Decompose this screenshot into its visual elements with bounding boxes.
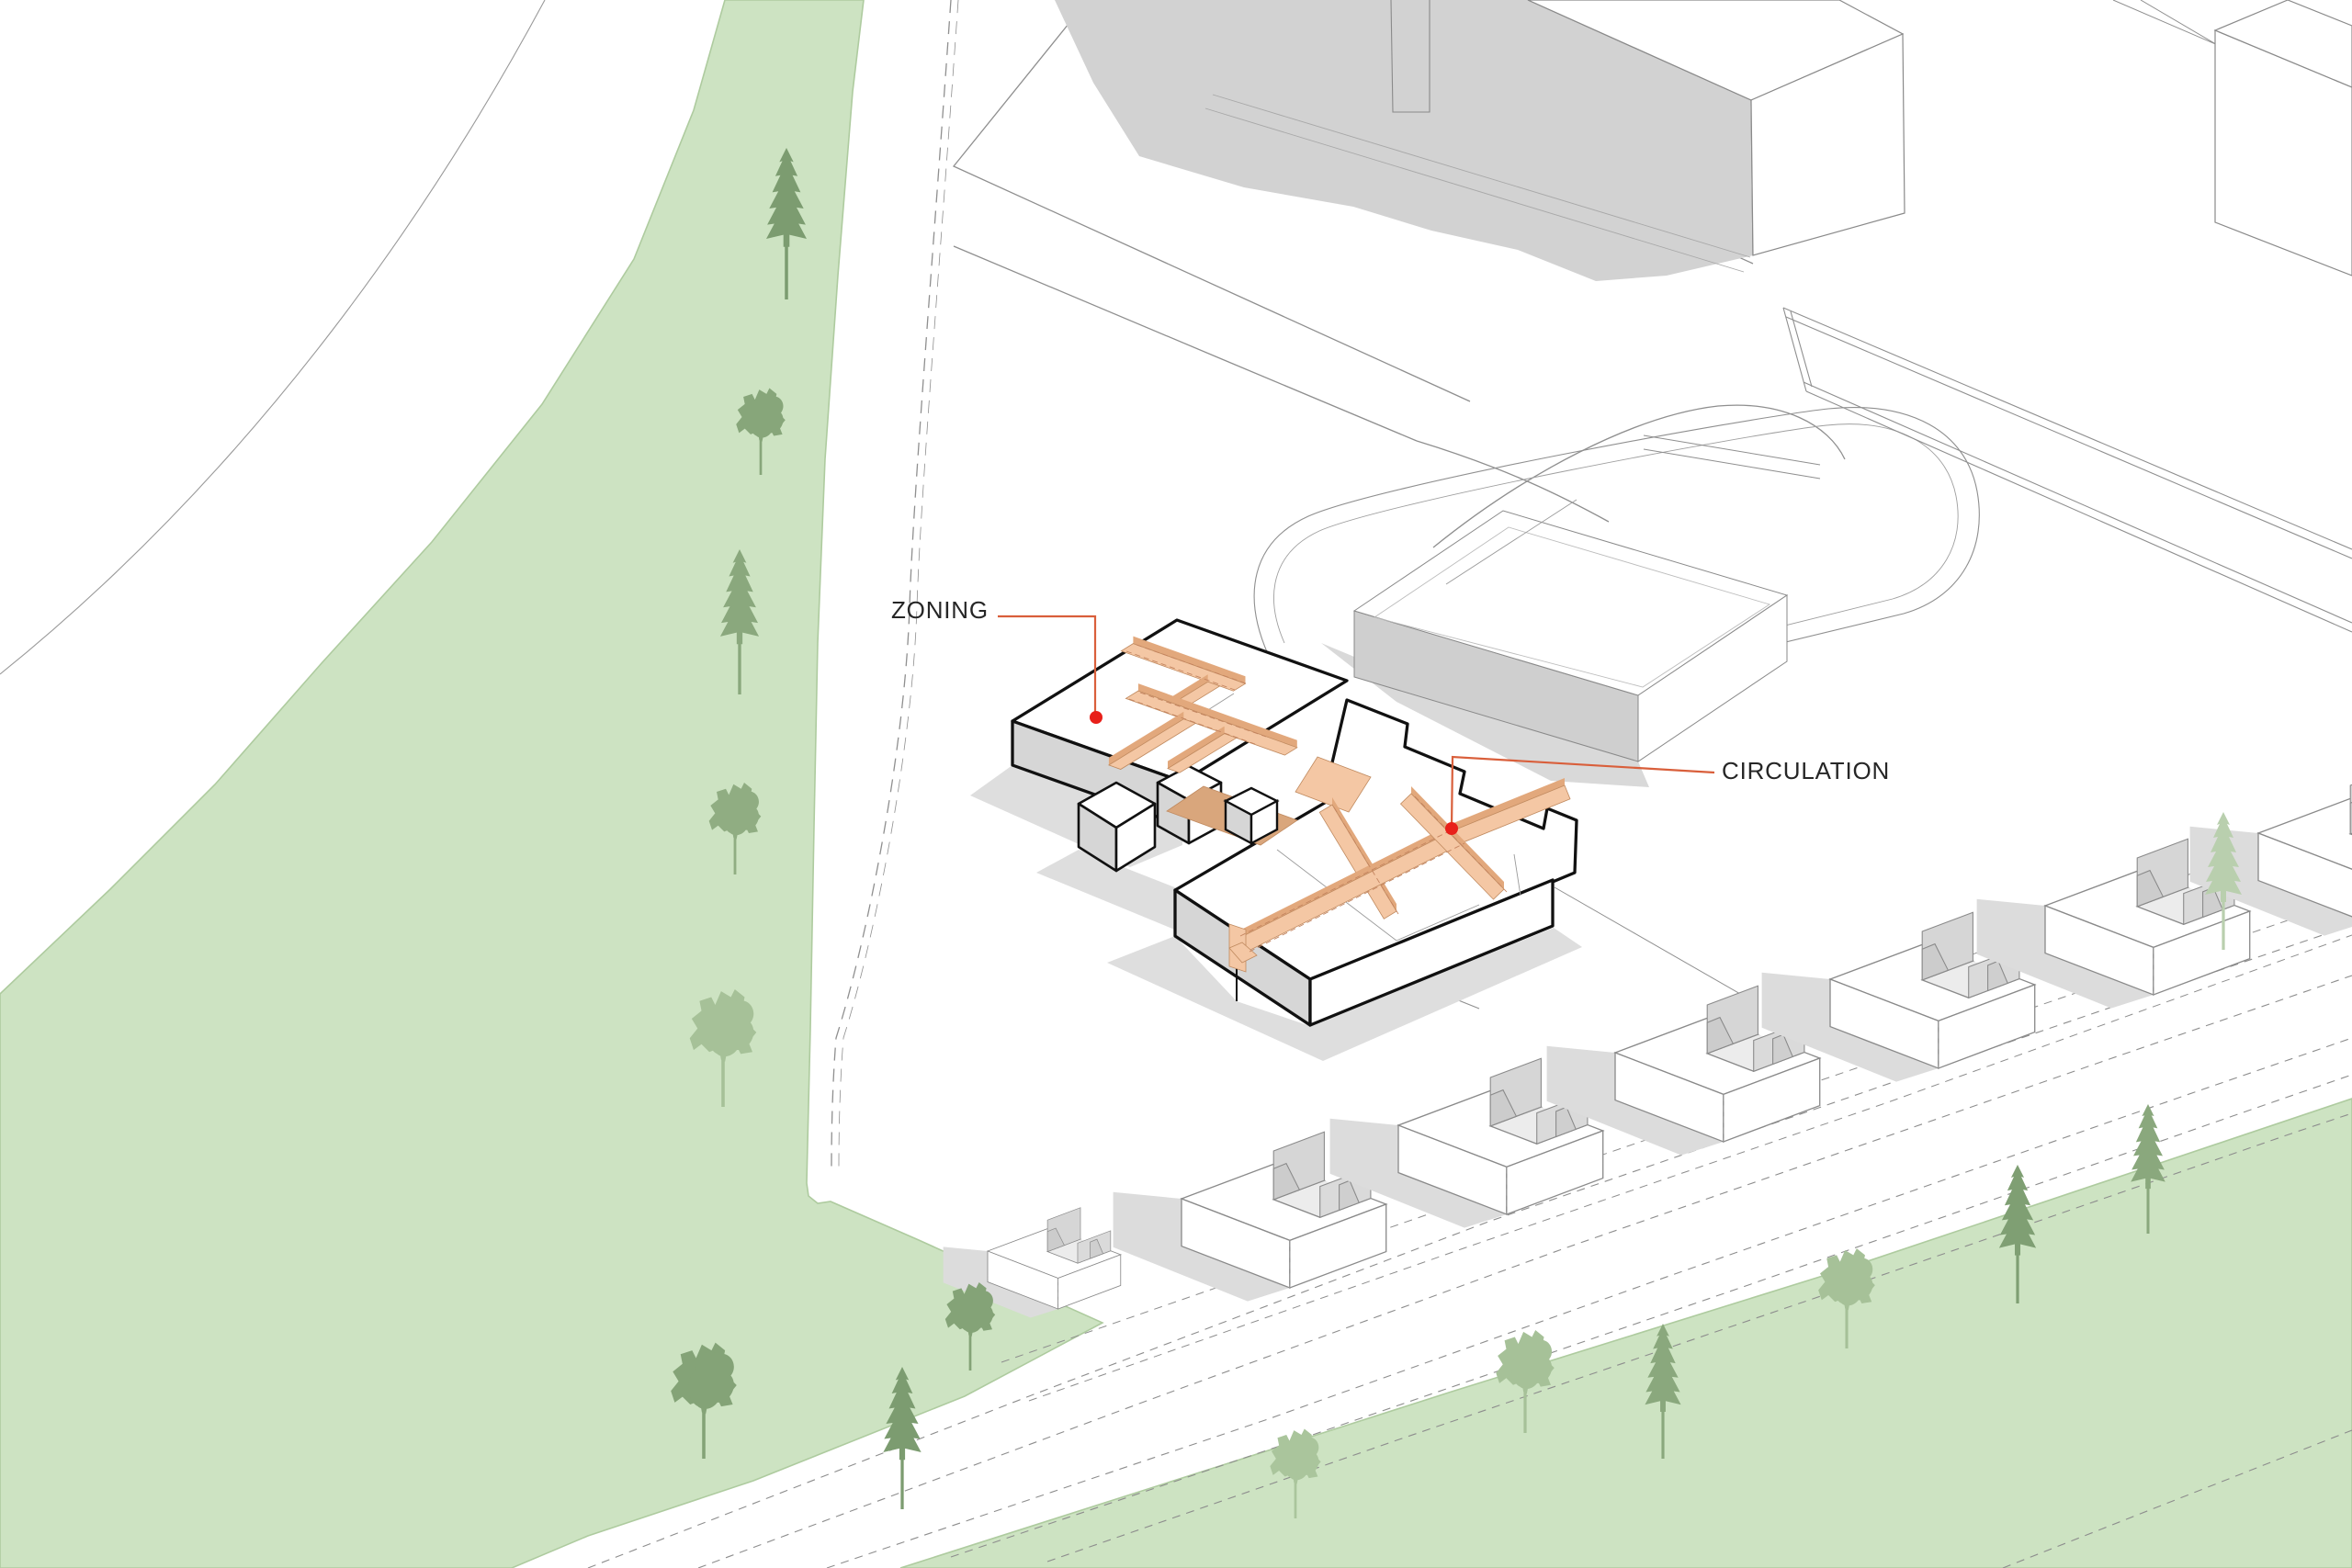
svg-text:ZONING: ZONING: [891, 596, 989, 624]
svg-text:CIRCULATION: CIRCULATION: [1722, 757, 1890, 784]
